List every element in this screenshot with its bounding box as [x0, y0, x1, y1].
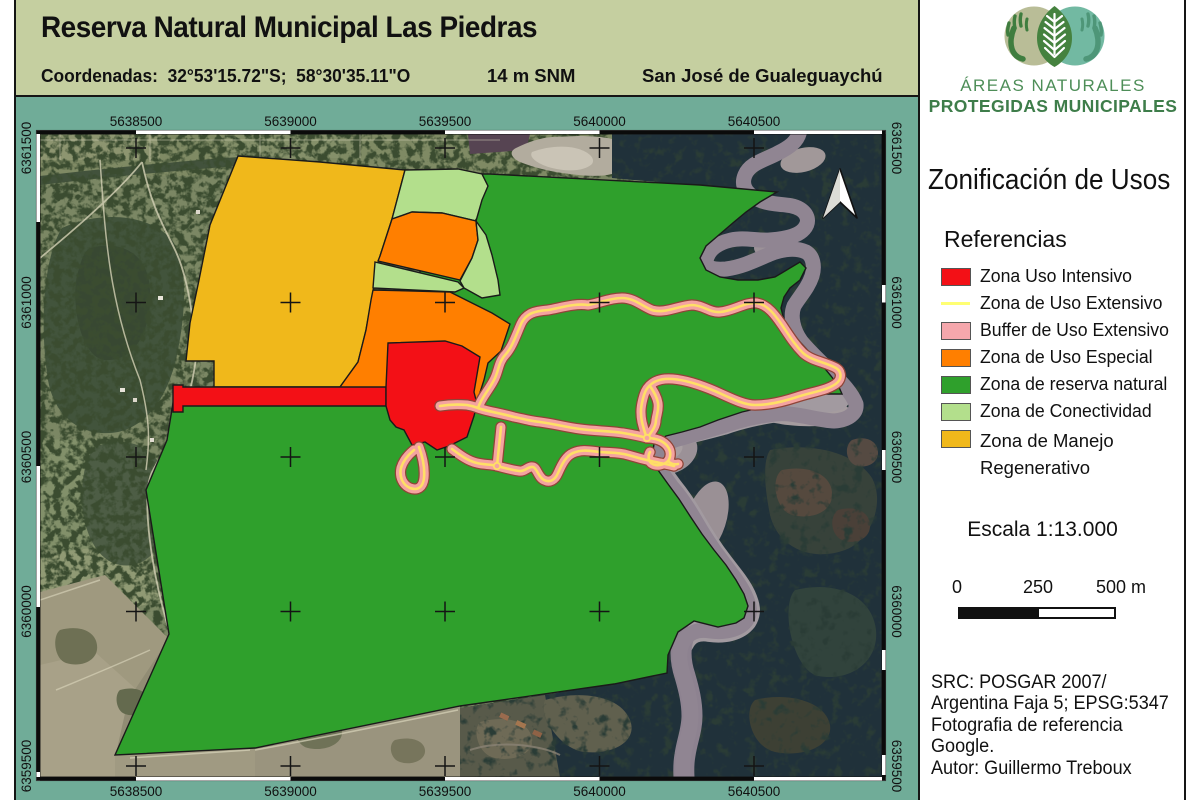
svg-text:6359500: 6359500: [19, 740, 34, 793]
svg-text:5639000: 5639000: [264, 114, 317, 129]
svg-text:6360500: 6360500: [889, 431, 904, 484]
svg-text:5640500: 5640500: [728, 114, 781, 129]
svg-text:5639000: 5639000: [264, 784, 317, 799]
svg-text:5640000: 5640000: [573, 784, 626, 799]
svg-text:6361000: 6361000: [889, 276, 904, 329]
svg-text:6361500: 6361500: [889, 122, 904, 175]
svg-text:6360500: 6360500: [19, 431, 34, 484]
svg-text:6361000: 6361000: [19, 276, 34, 329]
svg-text:6360000: 6360000: [889, 585, 904, 638]
svg-text:6360000: 6360000: [19, 585, 34, 638]
svg-text:5638500: 5638500: [110, 114, 163, 129]
svg-text:5640500: 5640500: [728, 784, 781, 799]
svg-text:6359500: 6359500: [889, 740, 904, 793]
svg-text:5638500: 5638500: [110, 784, 163, 799]
svg-text:6361500: 6361500: [19, 122, 34, 175]
svg-text:5639500: 5639500: [419, 784, 472, 799]
svg-text:5640000: 5640000: [573, 114, 626, 129]
svg-text:5639500: 5639500: [419, 114, 472, 129]
